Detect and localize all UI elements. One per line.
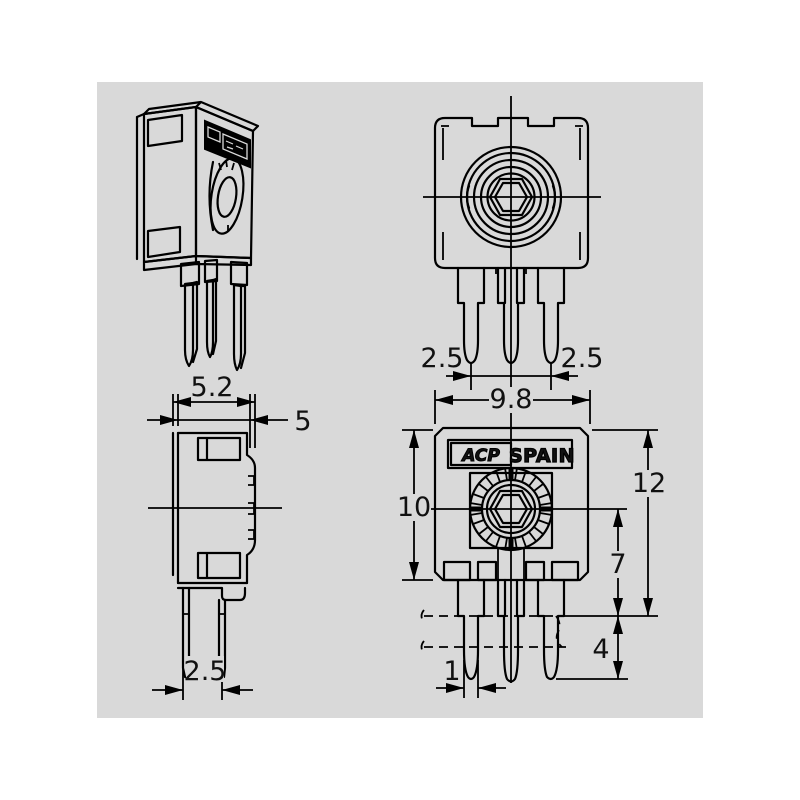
dim-side-body-depth: 5 xyxy=(294,406,311,437)
dim-back-overall-height: 12 xyxy=(632,468,666,499)
dim-front-pitch-right: 2.5 xyxy=(561,343,604,374)
datasheet-page: 2.5 2.5 5.2 5 2.5 xyxy=(0,0,800,800)
dim-back-pin-protrusion: 4 xyxy=(592,634,609,665)
dim-back-center-to-seating: 7 xyxy=(609,549,626,580)
dim-back-pin-width: 1 xyxy=(443,656,460,687)
dim-side-overall-depth: 5.2 xyxy=(191,372,234,403)
brand-logo-text: ACP xyxy=(460,446,500,466)
technical-drawing: 2.5 2.5 5.2 5 2.5 xyxy=(0,0,800,800)
dim-back-body-width: 9.8 xyxy=(490,384,533,415)
dim-side-pin-pitch: 2.5 xyxy=(184,656,227,687)
dim-front-pitch-left: 2.5 xyxy=(421,343,464,374)
brand-country-label: SPAIN xyxy=(509,445,575,467)
dim-back-body-height: 10 xyxy=(397,492,431,523)
